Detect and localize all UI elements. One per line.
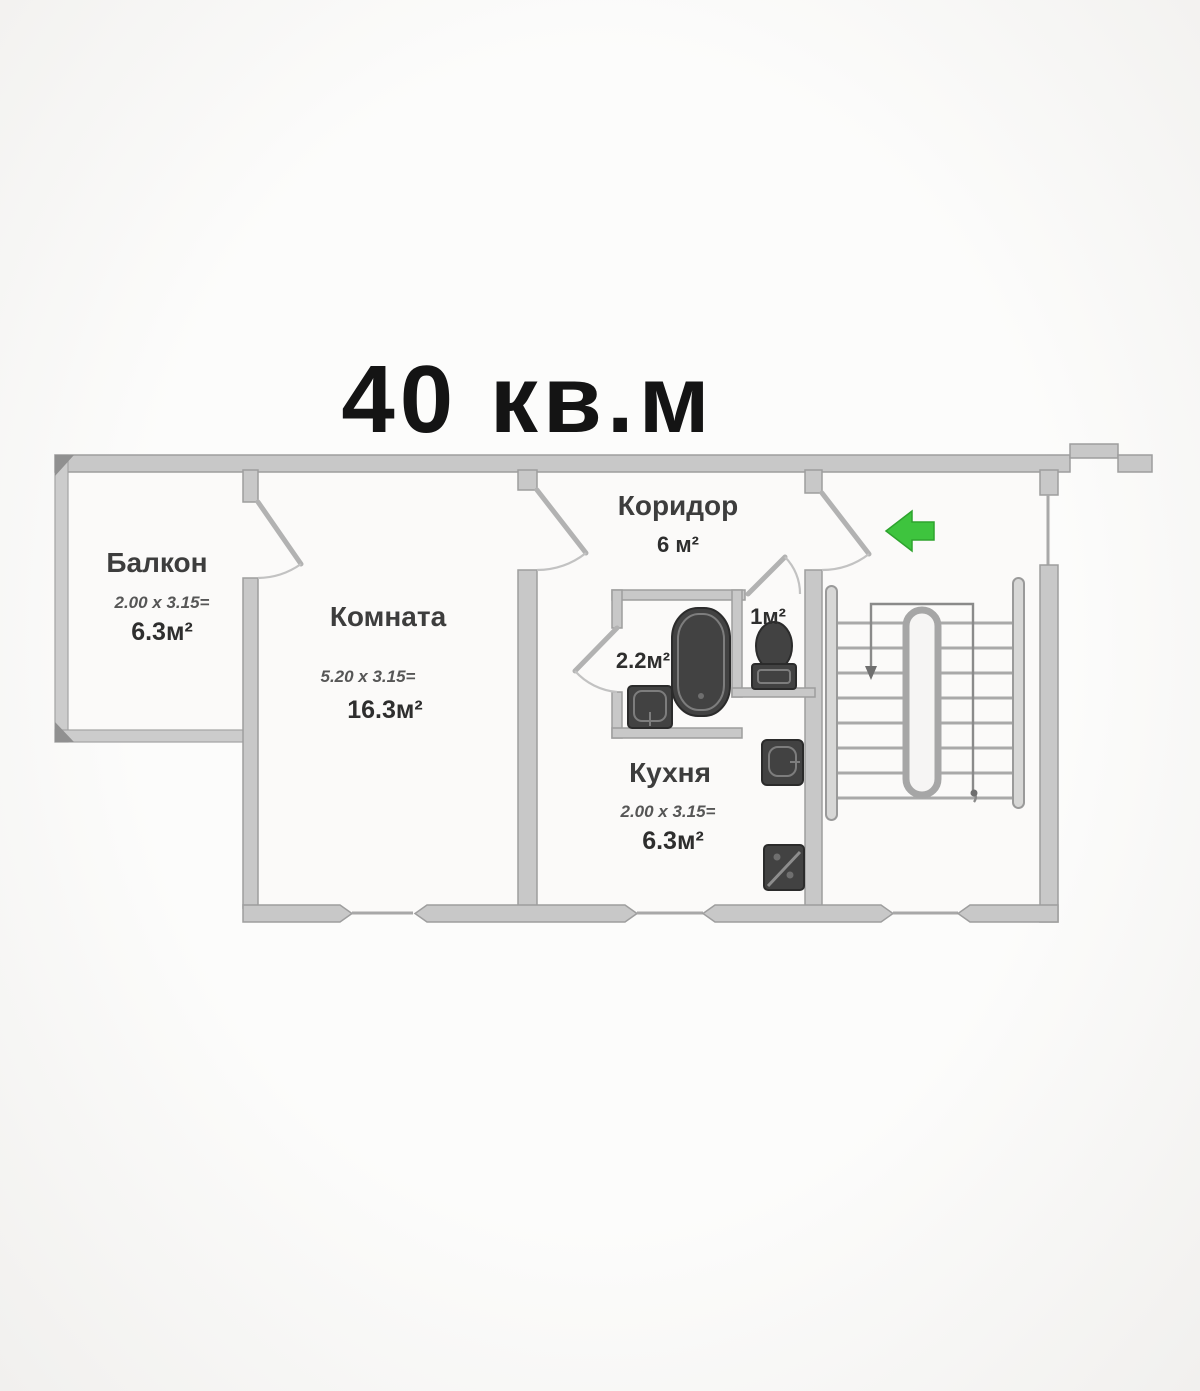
top-wall-end: [1118, 455, 1152, 472]
kitchen-dims: 2.00 x 3.15=: [619, 802, 715, 821]
balcony-bottom-wall: [55, 730, 245, 742]
bottom-wall-seg3: [703, 905, 893, 922]
bathroom-sink: [628, 686, 672, 728]
room-left-wall-upper: [243, 470, 258, 502]
bathroom-left-wall-upper: [612, 590, 622, 628]
bathroom-area: 2.2м²: [616, 648, 670, 673]
room-right-wall-pillar: [518, 470, 537, 490]
living-room-name: Комната: [330, 601, 447, 632]
bottom-wall-seg4: [958, 905, 1058, 922]
toilet-area: 1м²: [750, 604, 786, 629]
corridor-name: Коридор: [618, 490, 739, 521]
bottom-wall-seg2: [415, 905, 637, 922]
kitchen-area: 6.3м²: [642, 827, 704, 855]
floor-plan: 40 кв.м: [0, 0, 1200, 1391]
bathtub-drain: [698, 693, 704, 699]
living-room-area: 16.3м²: [347, 696, 422, 724]
balcony-name: Балкон: [106, 547, 207, 578]
toilet-fixture: [752, 622, 796, 689]
top-wall: [55, 455, 1070, 472]
stairwell-wall: [805, 570, 822, 918]
corridor-area: 6 м²: [657, 532, 699, 557]
stair-center-divider: [906, 610, 938, 795]
floor-plan-image: 40 кв.м: [0, 0, 1200, 1391]
living-room-dims: 5.20 x 3.15=: [320, 667, 415, 686]
room-right-wall: [518, 570, 537, 920]
bathroom-bottom-wall: [612, 728, 742, 738]
right-wall: [1040, 565, 1058, 922]
room-left-wall-lower: [243, 578, 258, 908]
balcony-dims: 2.00 x 3.15=: [113, 593, 209, 612]
right-wall-pillar: [1040, 470, 1058, 495]
bathroom-toilet-divider-wall: [732, 590, 742, 697]
kitchen-sink: [762, 740, 803, 785]
bathtub: [672, 608, 730, 716]
stove: [764, 845, 804, 890]
balcony-left-wall: [55, 455, 68, 742]
stair-right-rail: [1013, 578, 1024, 808]
kitchen-name: Кухня: [629, 757, 711, 788]
bottom-wall-seg1: [243, 905, 352, 922]
bathroom-top-wall: [612, 590, 745, 600]
balcony-area: 6.3м²: [131, 618, 193, 646]
stair-left-rail: [826, 586, 837, 820]
page-title: 40 кв.м: [341, 346, 714, 453]
stairwell-wall-pillar: [805, 470, 822, 493]
top-wall-notch: [1070, 444, 1118, 458]
